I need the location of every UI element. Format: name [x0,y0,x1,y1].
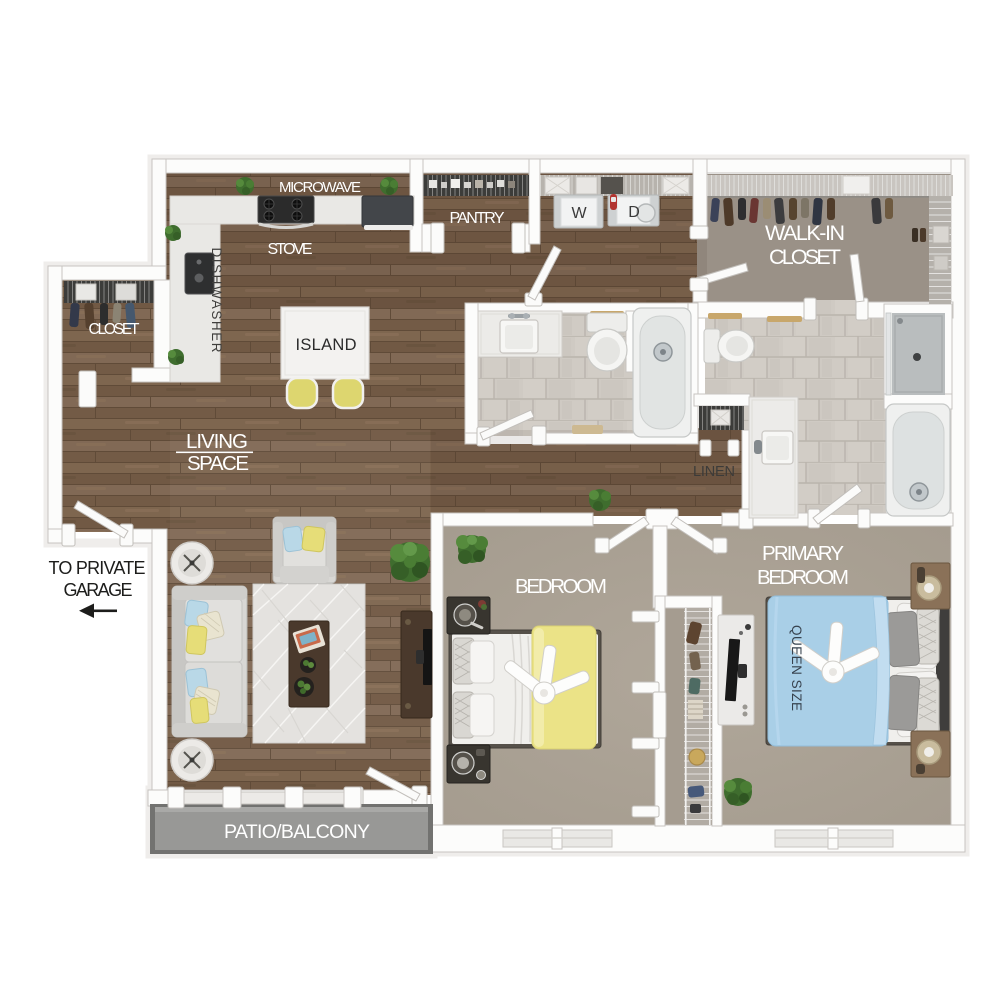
svg-text:DISHWASHER: DISHWASHER [209,248,224,353]
svg-text:SPACE: SPACE [187,452,249,475]
svg-text:CLOSET: CLOSET [89,321,141,338]
svg-text:QUEEN SIZE: QUEEN SIZE [789,625,804,711]
svg-text:WALK-IN: WALK-IN [765,221,845,245]
svg-text:CLOSET: CLOSET [769,245,841,269]
svg-text:W: W [571,205,587,222]
svg-text:PANTRY: PANTRY [450,210,505,227]
svg-text:PRIMARY: PRIMARY [762,542,844,565]
svg-text:ISLAND: ISLAND [296,336,357,354]
svg-text:D: D [628,204,640,221]
svg-text:MICROWAVE: MICROWAVE [279,179,361,196]
svg-text:BEDROOM: BEDROOM [757,566,849,589]
svg-text:GARAGE: GARAGE [64,580,133,600]
svg-text:TO PRIVATE: TO PRIVATE [49,558,146,578]
svg-text:PATIO/BALCONY: PATIO/BALCONY [224,821,370,843]
svg-text:LINEN: LINEN [693,464,735,480]
svg-text:LIVING: LIVING [186,430,248,453]
svg-text:STOVE: STOVE [268,241,313,258]
svg-text:BEDROOM: BEDROOM [515,575,607,598]
